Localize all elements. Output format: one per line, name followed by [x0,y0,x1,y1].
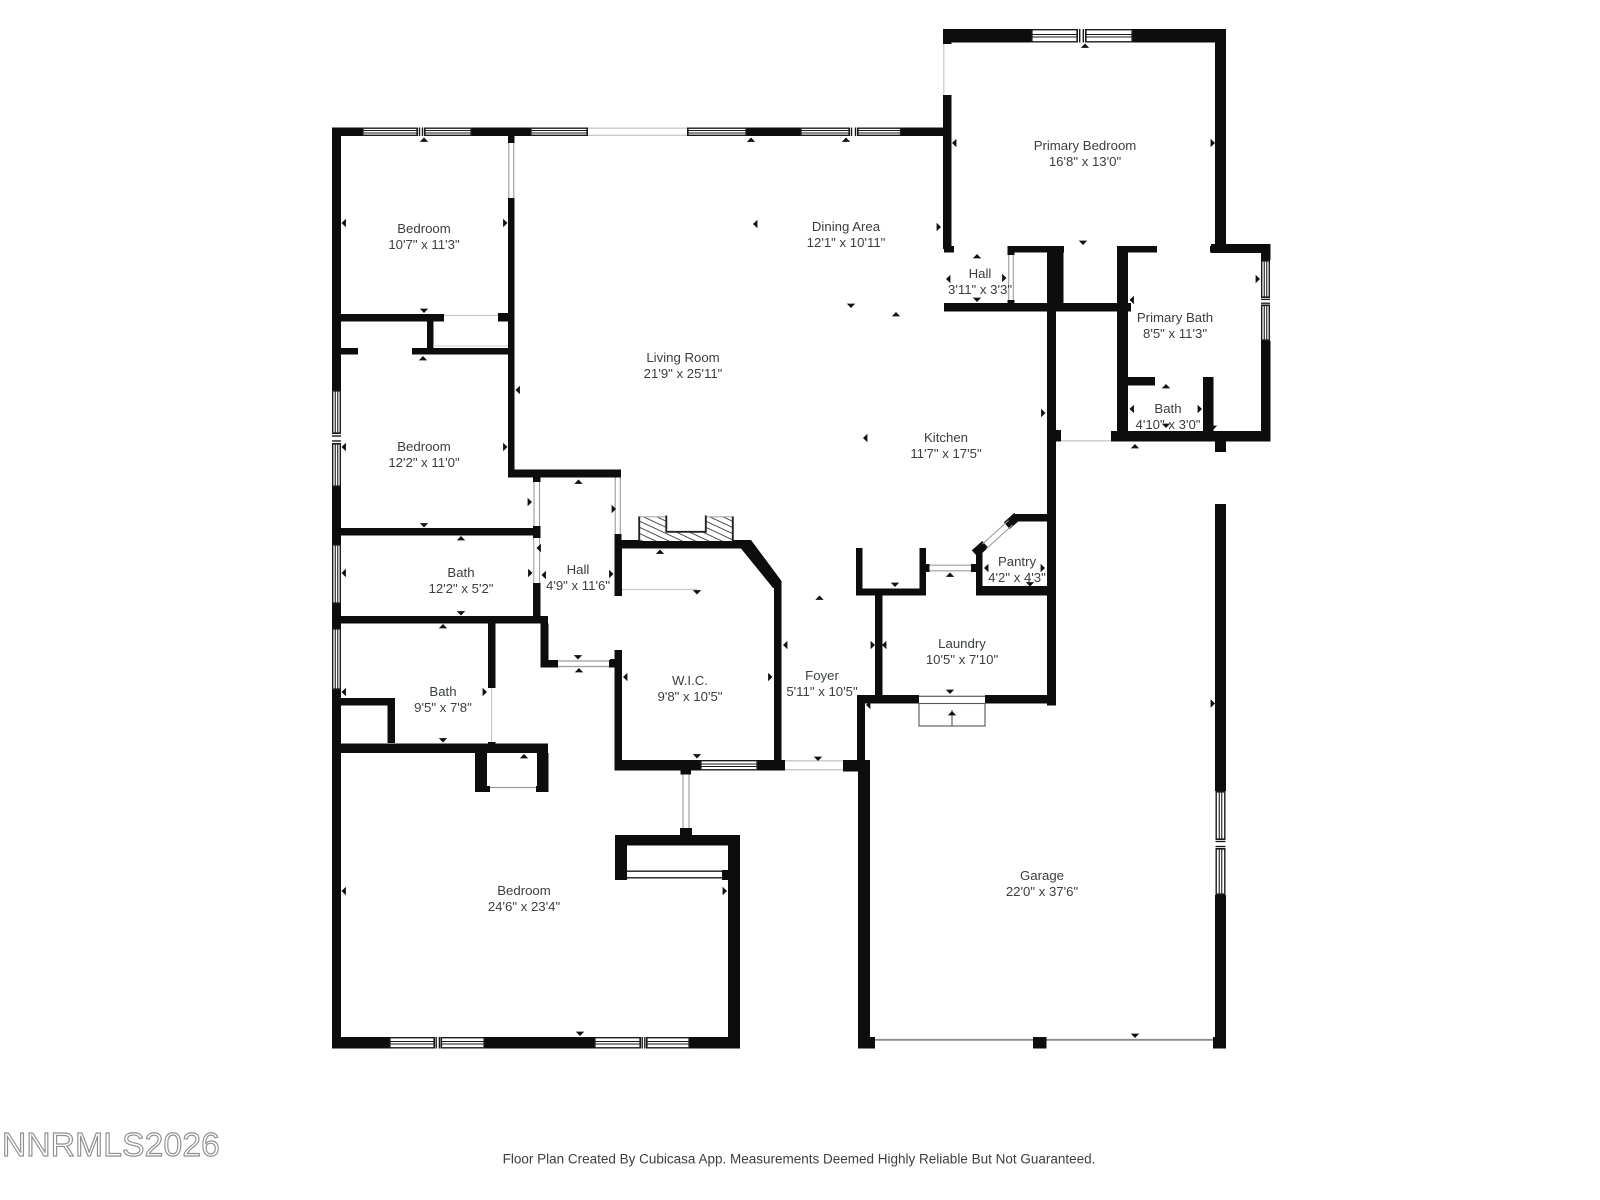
svg-text:9'5" x 7'8": 9'5" x 7'8" [414,700,472,715]
svg-text:Bath: Bath [1154,401,1181,416]
svg-text:10'5" x 7'10": 10'5" x 7'10" [926,652,999,667]
svg-text:Hall: Hall [969,266,992,281]
svg-text:Living Room: Living Room [646,350,719,365]
svg-text:Laundry: Laundry [938,636,986,651]
svg-text:5'11" x 10'5": 5'11" x 10'5" [786,684,858,699]
svg-text:Hall: Hall [567,562,590,577]
svg-text:Primary Bedroom: Primary Bedroom [1034,138,1137,153]
svg-text:4'10" x 3'0": 4'10" x 3'0" [1136,417,1201,432]
svg-text:Kitchen: Kitchen [924,430,968,445]
svg-text:11'7" x 17'5": 11'7" x 17'5" [910,446,982,461]
svg-text:9'8" x 10'5": 9'8" x 10'5" [658,689,723,704]
svg-text:22'0" x 37'6": 22'0" x 37'6" [1006,884,1079,899]
svg-text:4'2" x 4'3": 4'2" x 4'3" [988,570,1046,585]
svg-text:Foyer: Foyer [805,668,839,683]
svg-text:3'11" x 3'3": 3'11" x 3'3" [948,282,1012,297]
svg-text:Floor Plan Created By Cubicasa: Floor Plan Created By Cubicasa App. Meas… [503,1152,1096,1167]
svg-text:Dining Area: Dining Area [812,219,881,234]
svg-text:NNRMLS2026: NNRMLS2026 [2,1127,220,1164]
svg-text:W.I.C.: W.I.C. [672,673,708,688]
svg-text:Bath: Bath [429,684,456,699]
svg-text:16'8" x 13'0": 16'8" x 13'0" [1049,154,1122,169]
svg-text:Bedroom: Bedroom [397,221,451,236]
svg-text:Bedroom: Bedroom [497,883,551,898]
svg-text:12'2" x 5'2": 12'2" x 5'2" [429,581,494,596]
svg-text:21'9" x 25'11": 21'9" x 25'11" [644,366,723,381]
svg-text:Garage: Garage [1020,868,1064,883]
svg-text:Bedroom: Bedroom [397,439,451,454]
svg-text:Pantry: Pantry [998,554,1037,569]
svg-text:12'2" x 11'0": 12'2" x 11'0" [388,455,460,470]
svg-text:8'5" x 11'3": 8'5" x 11'3" [1143,326,1207,341]
svg-text:Bath: Bath [447,565,474,580]
svg-text:12'1" x 10'11": 12'1" x 10'11" [807,235,886,250]
svg-text:10'7" x 11'3": 10'7" x 11'3" [388,237,460,252]
svg-text:24'6" x 23'4": 24'6" x 23'4" [488,899,561,914]
svg-text:Primary Bath: Primary Bath [1137,310,1213,325]
svg-text:4'9" x 11'6": 4'9" x 11'6" [546,578,610,593]
